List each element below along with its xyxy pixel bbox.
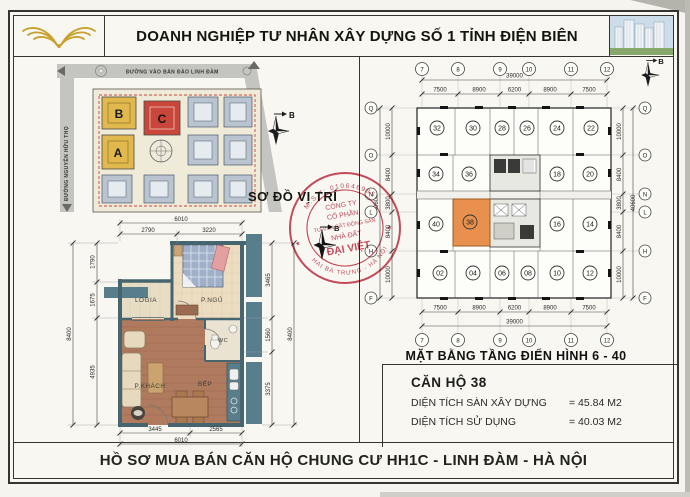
dim-top-total: 6010: [174, 217, 188, 223]
svg-text:8900: 8900: [472, 88, 486, 94]
kitchen-counter: [227, 363, 241, 421]
svg-text:TƯ VẤN BẤT ĐỘNG SẢN: TƯ VẤN BẤT ĐỘNG SẢN: [313, 217, 376, 235]
svg-text:11: 11: [568, 67, 575, 73]
dim-h-total-bottom: 39000: [506, 320, 523, 326]
block-a-label: A: [114, 146, 123, 160]
svg-text:1790: 1790: [91, 255, 97, 269]
svg-text:10: 10: [553, 271, 561, 278]
svg-text:8900: 8900: [543, 88, 557, 94]
document-inner-frame: DOANH NGHIỆP TƯ NHÂN XÂY DỰNG SỐ 1 TỈNH …: [13, 15, 674, 479]
scanned-document-page: DOANH NGHIỆP TƯ NHÂN XÂY DỰNG SỐ 1 TỈNH …: [0, 0, 690, 497]
dim-v-total-right: 40600: [631, 194, 637, 211]
svg-text:7500: 7500: [433, 306, 447, 312]
svg-text:1560: 1560: [266, 328, 272, 342]
bedside-table: [174, 245, 182, 256]
svg-text:2790: 2790: [141, 228, 155, 234]
floor-plan-title: MẶT BẰNG TẦNG ĐIỂN HÌNH 6 - 40: [405, 348, 626, 363]
svg-text:14: 14: [586, 222, 594, 229]
svg-text:12: 12: [604, 338, 611, 344]
dim-h-total-top: 39000: [506, 74, 523, 80]
svg-text:F: F: [643, 296, 647, 302]
svg-text:3800: 3800: [617, 196, 623, 210]
dresser: [176, 305, 198, 315]
svg-text:7500: 7500: [433, 88, 447, 94]
info-label: DIỆN TÍCH SỬ DỤNG: [411, 416, 569, 428]
svg-text:38: 38: [466, 220, 474, 227]
site-north-compass-icon: B: [268, 111, 295, 145]
svg-text:12: 12: [586, 271, 594, 278]
svg-text:26: 26: [523, 126, 531, 133]
svg-text:O: O: [643, 153, 648, 159]
compass-north-label: B: [289, 111, 295, 120]
street-left-label: ĐƯỜNG NGUYỄN HỮU THỌ: [62, 126, 70, 201]
corridor-band: [417, 191, 611, 199]
dim-bottom-total: 6010: [174, 438, 188, 444]
room-label-bedroom: P.NGỦ: [201, 295, 223, 304]
building-floor-plan: 39000 7500 8900 6200 8900 7500 7500 8900…: [360, 57, 677, 369]
svg-text:O: O: [369, 153, 374, 159]
svg-text:1675: 1675: [91, 293, 97, 307]
unit-info-box: CĂN HỘ 38 DIỆN TÍCH SÀN XÂY DỰNG = 45.84…: [382, 364, 677, 447]
svg-text:Q: Q: [643, 106, 648, 112]
svg-text:11: 11: [568, 338, 575, 344]
building-photo-cell: [609, 16, 673, 56]
svg-text:6200: 6200: [508, 88, 522, 94]
svg-text:06: 06: [498, 271, 506, 278]
svg-text:34: 34: [432, 172, 440, 179]
svg-text:16: 16: [553, 222, 561, 229]
svg-text:04: 04: [469, 271, 477, 278]
svg-text:8900: 8900: [543, 306, 557, 312]
unit-info-row: DIỆN TÍCH SỬ DỤNG = 40.03 M2: [411, 416, 677, 428]
svg-text:★: ★: [386, 224, 393, 232]
svg-text:Q: Q: [369, 106, 374, 112]
svg-text:8400: 8400: [67, 327, 73, 341]
svg-text:24: 24: [553, 126, 561, 133]
svg-text:8400: 8400: [288, 327, 294, 341]
company-stamp: M.S.T: 010646985 HAI BÀ TRƯNG - HÀ NỘI ★…: [286, 169, 404, 287]
svg-text:08: 08: [524, 271, 532, 278]
svg-text:28: 28: [498, 126, 506, 133]
svg-text:10000: 10000: [617, 265, 623, 282]
svg-text:8900: 8900: [472, 306, 486, 312]
header-banner: DOANH NGHIỆP TƯ NHÂN XÂY DỰNG SỐ 1 TỈNH …: [14, 16, 673, 57]
street-top-label: ĐƯỜNG VÀO BÁN ĐẢO LINH ĐÀM: [126, 68, 219, 76]
svg-text:10000: 10000: [386, 122, 392, 139]
svg-text:10000: 10000: [617, 122, 623, 139]
svg-text:3445: 3445: [148, 427, 162, 433]
svg-text:B: B: [658, 57, 664, 66]
svg-text:20: 20: [586, 172, 594, 179]
unit-info-row: DIỆN TÍCH SÀN XÂY DỰNG = 45.84 M2: [411, 397, 677, 409]
svg-text:3375: 3375: [266, 382, 272, 396]
scan-edge-right: [685, 0, 690, 497]
svg-text:3220: 3220: [202, 228, 216, 234]
svg-text:32: 32: [433, 126, 441, 133]
company-name-title: DOANH NGHIỆP TƯ NHÂN XÂY DỰNG SỐ 1 TỈNH …: [105, 16, 609, 56]
svg-text:7500: 7500: [582, 88, 596, 94]
svg-text:6200: 6200: [508, 306, 522, 312]
unit-info-title: CĂN HỘ 38: [411, 375, 677, 390]
main-drawing-area: B C A ĐƯỜNG VÀO BÁN ĐẢO LINH ĐÀM ĐƯỜNG N…: [14, 57, 673, 442]
svg-text:8400: 8400: [617, 224, 623, 238]
wings-logo-icon: [19, 19, 99, 53]
svg-text:02: 02: [436, 271, 444, 278]
svg-text:N: N: [643, 192, 647, 198]
svg-text:12: 12: [604, 67, 611, 73]
svg-text:7500: 7500: [582, 306, 596, 312]
svg-text:30: 30: [469, 126, 477, 133]
svg-text:10: 10: [526, 338, 533, 344]
building-render-image: [610, 16, 673, 55]
svg-text:3465: 3465: [266, 273, 272, 287]
svg-text:10: 10: [526, 67, 533, 73]
block-c-label: C: [158, 112, 167, 126]
svg-text:H: H: [643, 249, 647, 255]
balcony-slab-right: [246, 234, 262, 424]
room-label-wc: WC: [218, 338, 228, 344]
svg-text:36: 36: [465, 172, 473, 179]
info-label: DIỆN TÍCH SÀN XÂY DỰNG: [411, 397, 569, 409]
info-value: = 45.84 M2: [569, 397, 622, 409]
svg-text:2565: 2565: [209, 427, 223, 433]
svg-text:★: ★: [295, 240, 302, 248]
svg-text:4935: 4935: [91, 365, 97, 379]
building-core: [490, 155, 540, 247]
document-sheet: DOANH NGHIỆP TƯ NHÂN XÂY DỰNG SỐ 1 TỈNH …: [8, 10, 679, 484]
svg-text:8400: 8400: [617, 167, 623, 181]
scan-edge-bottom: [380, 492, 690, 497]
info-value: = 40.03 M2: [569, 416, 622, 428]
block-b-label: B: [115, 107, 124, 121]
svg-text:F: F: [369, 296, 373, 302]
building-north-compass-icon: B: [641, 57, 664, 87]
svg-text:40: 40: [432, 222, 440, 229]
document-title: HỒ SƠ MUA BÁN CĂN HỘ CHUNG CƯ HH1C - LIN…: [100, 452, 588, 469]
room-label-living: P.KHÁCH: [134, 381, 165, 390]
company-logo-cell: [14, 16, 105, 56]
bed: [183, 245, 230, 287]
room-label-logia: LOGIA: [135, 297, 157, 304]
svg-text:18: 18: [553, 172, 561, 179]
svg-text:22: 22: [587, 126, 595, 133]
